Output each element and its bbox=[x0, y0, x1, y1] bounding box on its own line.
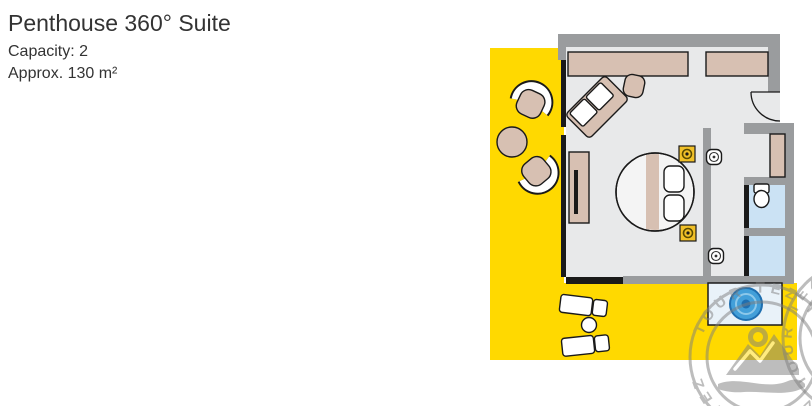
entrance-floor bbox=[768, 92, 780, 123]
sliding-door-bottom bbox=[566, 277, 623, 284]
bed-runner bbox=[646, 152, 659, 232]
hallway-light bbox=[709, 249, 724, 264]
spotlight bbox=[679, 146, 695, 162]
tv bbox=[574, 170, 578, 214]
glass-wall-left-lower bbox=[561, 135, 566, 277]
wall-between-baths bbox=[744, 228, 794, 236]
niche-closet bbox=[770, 134, 785, 177]
lounger-headrest bbox=[594, 335, 610, 352]
wall-cabinet-right bbox=[706, 52, 768, 76]
glass-wall-left-upper bbox=[561, 60, 566, 127]
wall-right-lower bbox=[785, 134, 794, 284]
terrace-table bbox=[497, 127, 527, 157]
pillow bbox=[664, 166, 684, 192]
wall-left-stub bbox=[558, 47, 566, 60]
lounger-headrest bbox=[592, 299, 608, 317]
tv-sideboard bbox=[569, 152, 589, 223]
floorplan-svg: TOUR TEZ TOUR TEZ TOUR TEZ TOUR TEZ TOUR… bbox=[0, 0, 812, 406]
wall-top bbox=[558, 34, 780, 47]
hallway-light bbox=[707, 150, 722, 165]
toilet-room-wall bbox=[744, 185, 749, 228]
wall-cabinet-left bbox=[568, 52, 688, 76]
spotlight bbox=[680, 225, 696, 241]
pillow bbox=[664, 195, 684, 221]
toilet bbox=[754, 184, 769, 208]
lounger-side-table bbox=[582, 318, 597, 333]
round-bed bbox=[616, 152, 694, 232]
wall-step bbox=[744, 123, 794, 134]
shower-room-wall bbox=[744, 236, 749, 276]
shower-room-floor bbox=[749, 236, 785, 276]
wall-right-upper bbox=[768, 34, 780, 92]
